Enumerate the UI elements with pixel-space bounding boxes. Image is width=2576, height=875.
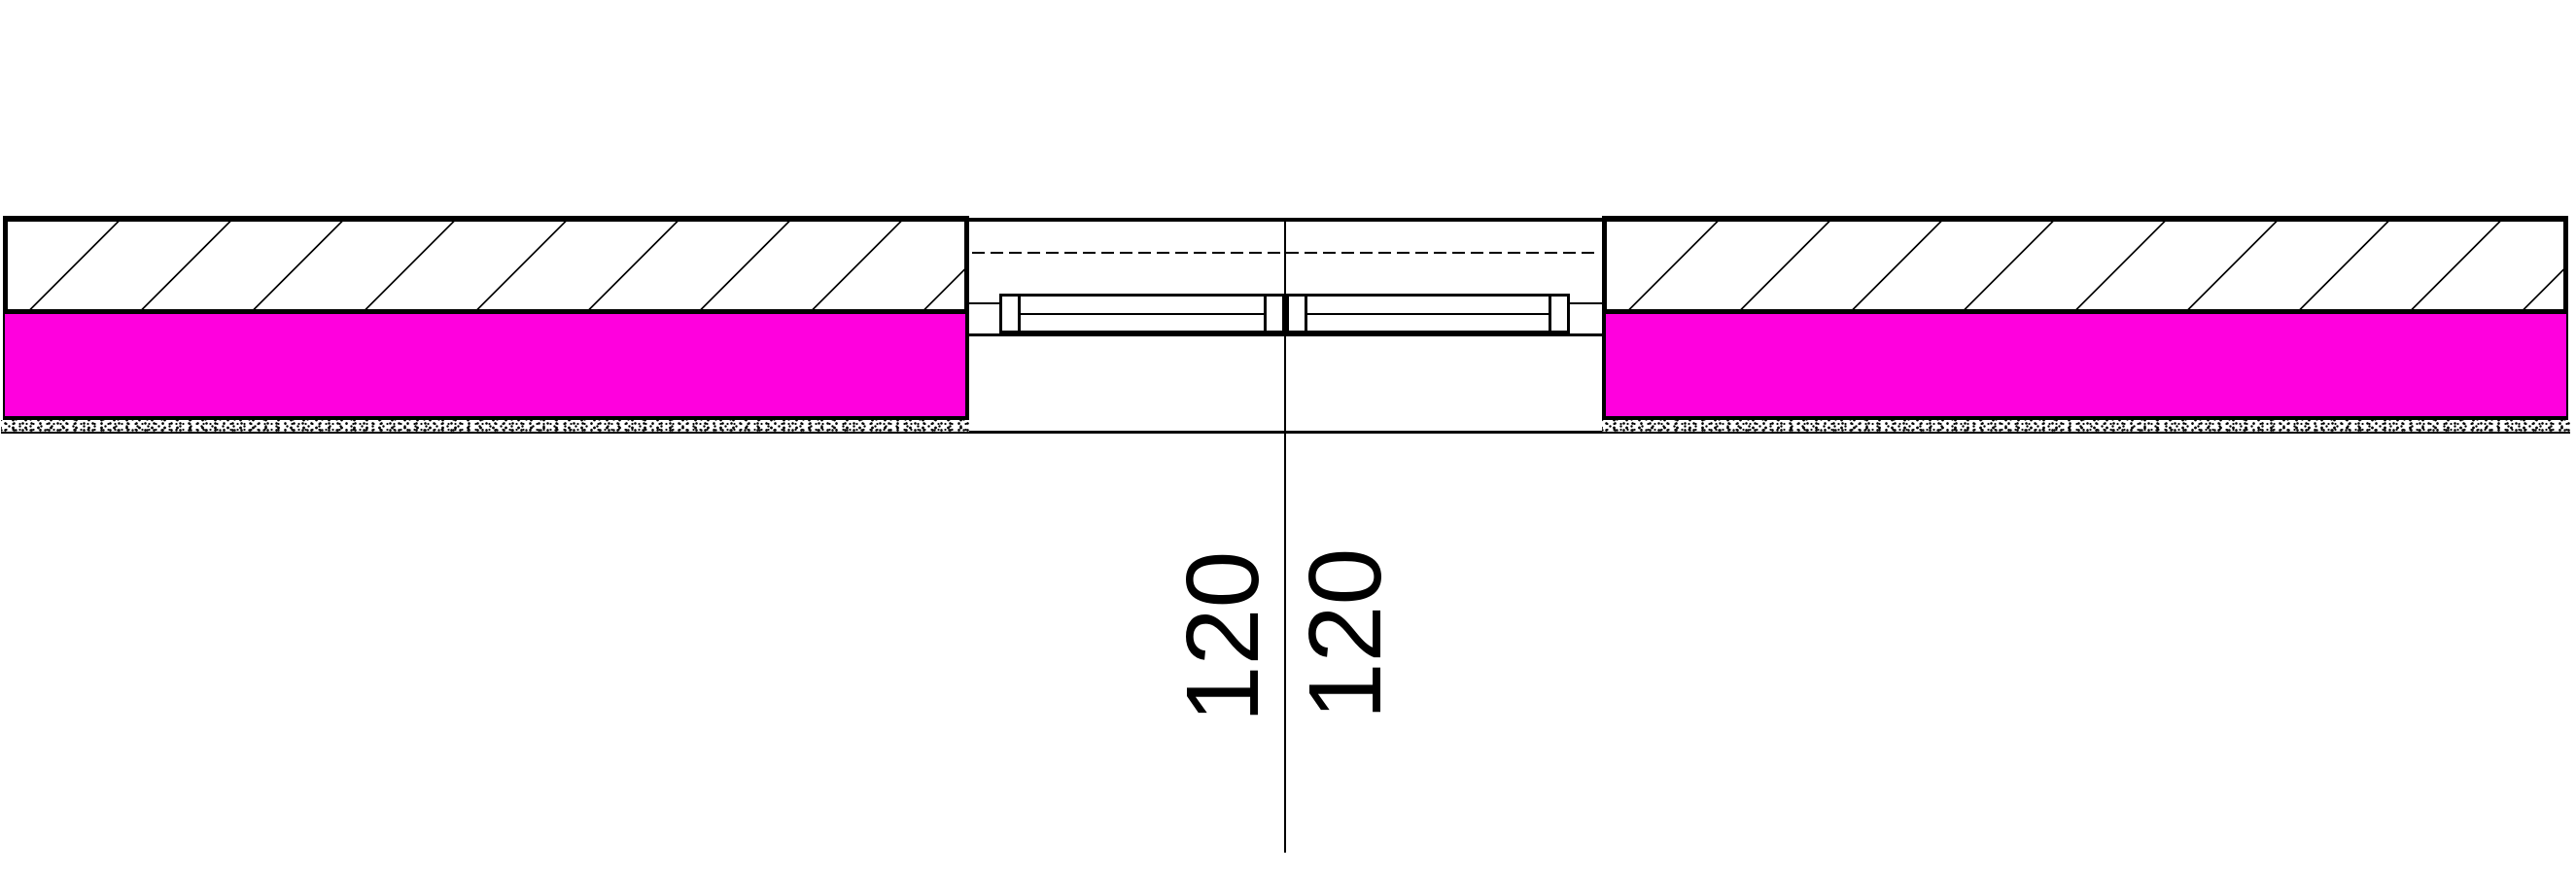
right-jamb-line: [1570, 302, 1602, 304]
right-outer-stile: [1549, 294, 1570, 333]
right-leaf-panel: [1305, 294, 1551, 333]
dimension-label-left: 120: [1171, 551, 1274, 723]
right-wall-stipple-strip: [1602, 420, 2570, 434]
left-meeting-stile: [1264, 294, 1285, 333]
center-axis-line: [1284, 220, 1286, 853]
hidden-edge-dashed-line: [972, 252, 1600, 254]
right-leaf-mid-line: [1306, 313, 1549, 315]
right-wall-insulation-layer: [1602, 314, 2568, 416]
left-wall-hatch-layer: [3, 216, 969, 314]
left-wall-insulation-layer: [3, 314, 969, 416]
dimension-label-right: 120: [1294, 548, 1397, 720]
left-wall-stipple-strip: [1, 420, 969, 434]
left-leaf-mid-line: [1020, 313, 1265, 315]
right-wall-hatch-layer: [1602, 216, 2568, 314]
left-leaf-panel: [1018, 294, 1267, 333]
cad-viewport: 120 120: [0, 0, 2576, 875]
left-jamb-line: [969, 302, 999, 304]
